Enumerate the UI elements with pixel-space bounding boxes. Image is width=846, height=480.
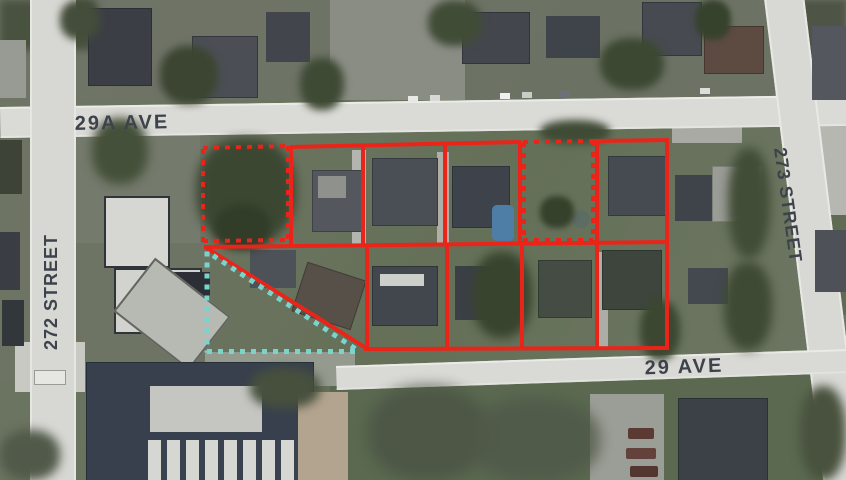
street-label-272-street: 272 STREET (42, 234, 60, 350)
street-label-29a-ave: 29A AVE (75, 112, 170, 134)
satellite-map: 29A AVE 272 STREET 273 STREET 29 AVE (0, 0, 846, 480)
street-label-29-ave: 29 AVE (644, 356, 723, 379)
street-label-273-street: 273 STREET (771, 146, 805, 263)
street-labels: 29A AVE 272 STREET 273 STREET 29 AVE (0, 0, 846, 480)
